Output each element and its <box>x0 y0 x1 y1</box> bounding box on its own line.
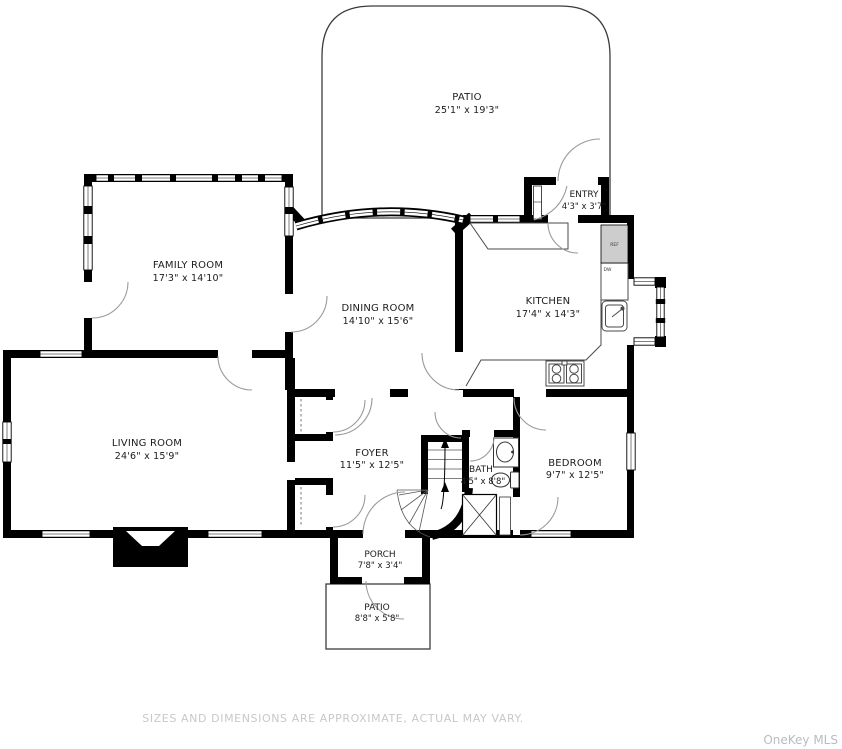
label-dining-room-dims: 14'10" x 15'6" <box>343 316 414 327</box>
bay-window <box>634 277 666 347</box>
label-kitchen-name: KITCHEN <box>526 296 571 307</box>
label-foyer-dims: 11'5" x 12'5" <box>340 460 405 471</box>
label-bath-name: BATH <box>469 465 493 475</box>
kitchen-sink-icon <box>602 301 627 331</box>
label-dishwasher: DW <box>604 267 612 273</box>
label-porch-dims: 7'8" x 3'4" <box>358 561 403 571</box>
shower-icon <box>463 495 497 536</box>
label-living-room-dims: 24'6" x 15'9" <box>115 451 180 462</box>
vanity-sink-icon <box>494 438 519 467</box>
label-patio-bottom-name: PATIO <box>364 603 390 613</box>
label-patio-top-dims: 25'1" x 19'3" <box>435 105 500 116</box>
stair-arrow-icon <box>441 482 449 492</box>
label-family-room-dims: 17'3" x 14'10" <box>153 273 224 284</box>
label-foyer-name: FOYER <box>355 448 388 459</box>
curved-window-wall <box>296 212 463 226</box>
label-entry-dims: 4'3" x 3'7" <box>562 202 607 212</box>
label-dining-room-name: DINING ROOM <box>341 303 414 314</box>
stove-icon <box>546 361 584 386</box>
entry-sidelight <box>534 186 542 219</box>
floor-plan-page: PATIO 25'1" x 19'3" ENTRY 4'3" x 3'7" FA… <box>0 0 842 749</box>
label-patio-bottom-dims: 8'8" x 5'8" <box>355 614 400 624</box>
floor-plan-svg: PATIO 25'1" x 19'3" ENTRY 4'3" x 3'7" FA… <box>0 0 842 749</box>
label-refrigerator: REF <box>610 242 619 248</box>
label-bath-dims: 4'5" x 8'8" <box>461 477 506 487</box>
watermark: OneKey MLS <box>763 733 838 747</box>
footer-disclaimer: SIZES AND DIMENSIONS ARE APPROXIMATE, AC… <box>142 712 523 725</box>
label-porch-name: PORCH <box>364 550 395 560</box>
label-bedroom-dims: 9'7" x 12'5" <box>546 470 604 481</box>
label-living-room-name: LIVING ROOM <box>112 438 182 449</box>
label-entry-name: ENTRY <box>569 190 599 200</box>
label-patio-top-name: PATIO <box>452 92 481 103</box>
label-kitchen-dims: 17'4" x 14'3" <box>516 309 581 320</box>
label-family-room-name: FAMILY ROOM <box>153 260 223 271</box>
stair-direction-line <box>441 443 445 509</box>
label-bedroom-name: BEDROOM <box>548 458 602 469</box>
counter-top <box>470 223 568 249</box>
bath-door-leaf <box>500 497 511 535</box>
fireplace <box>113 527 188 567</box>
